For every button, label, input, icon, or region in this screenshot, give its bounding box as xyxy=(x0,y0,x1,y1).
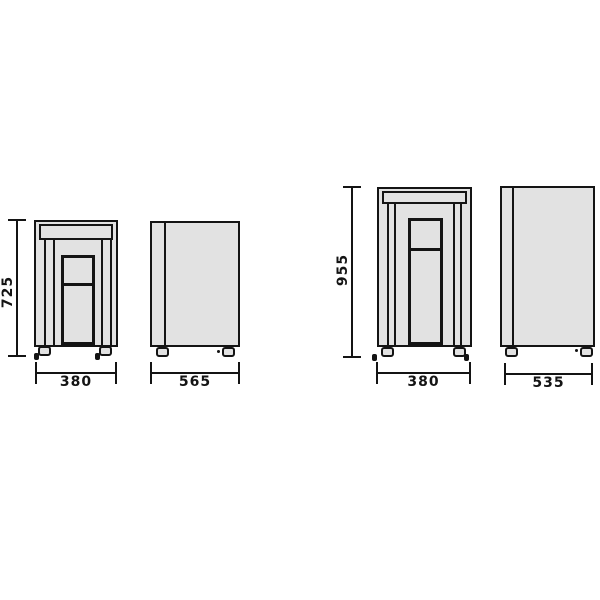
model-b-side-view xyxy=(500,186,595,347)
model-b-height-dimension-label: 955 xyxy=(336,250,350,290)
panel-seam-line xyxy=(512,188,514,345)
caster xyxy=(156,347,169,357)
model-a-front-view xyxy=(34,220,118,347)
model-a-height-dimension-tick-top xyxy=(8,219,26,221)
model-b-height-dimension-line xyxy=(351,187,353,358)
caster-detail-dot xyxy=(217,350,220,353)
model-b-front-width-dimension-label: 380 xyxy=(376,375,471,389)
caster xyxy=(580,347,593,357)
door-panel xyxy=(61,255,95,345)
model-b-height-dimension-tick-bottom xyxy=(343,356,361,358)
panel-seam-line xyxy=(110,240,112,345)
model-a-side-depth-dimension-label: 565 xyxy=(150,375,240,389)
door-window-divider xyxy=(411,248,440,251)
caster-wheel-mark xyxy=(372,354,377,361)
top-panel xyxy=(382,191,467,204)
caster-detail-dot xyxy=(575,349,578,352)
model-b-front-view xyxy=(377,187,472,347)
model-b-side-depth-dimension-label: 535 xyxy=(504,376,593,390)
model-a-front-width-dimension-label: 380 xyxy=(35,375,117,389)
panel-seam-line xyxy=(387,204,389,345)
panel-seam-line xyxy=(460,204,462,345)
top-panel xyxy=(39,224,113,240)
caster xyxy=(222,347,235,357)
panel-seam-line xyxy=(164,223,166,345)
model-a-height-dimension-tick-bottom xyxy=(8,355,26,357)
caster xyxy=(505,347,518,357)
caster xyxy=(453,347,466,357)
panel-seam-line xyxy=(453,204,455,345)
technical-drawing: 725 380 565 955 xyxy=(0,0,600,600)
model-b-height-dimension-tick-top xyxy=(343,186,361,188)
panel-seam-line xyxy=(53,240,55,345)
door-window-divider xyxy=(64,283,92,286)
panel-seam-line xyxy=(101,240,103,345)
caster xyxy=(381,347,394,357)
model-a-side-view xyxy=(150,221,240,347)
caster xyxy=(38,346,51,356)
panel-seam-line xyxy=(394,204,396,345)
model-a-height-dimension-line xyxy=(16,220,18,356)
door-panel xyxy=(408,218,443,345)
model-a-height-dimension-label: 725 xyxy=(1,272,15,312)
panel-seam-line xyxy=(44,240,46,345)
caster xyxy=(99,346,112,356)
